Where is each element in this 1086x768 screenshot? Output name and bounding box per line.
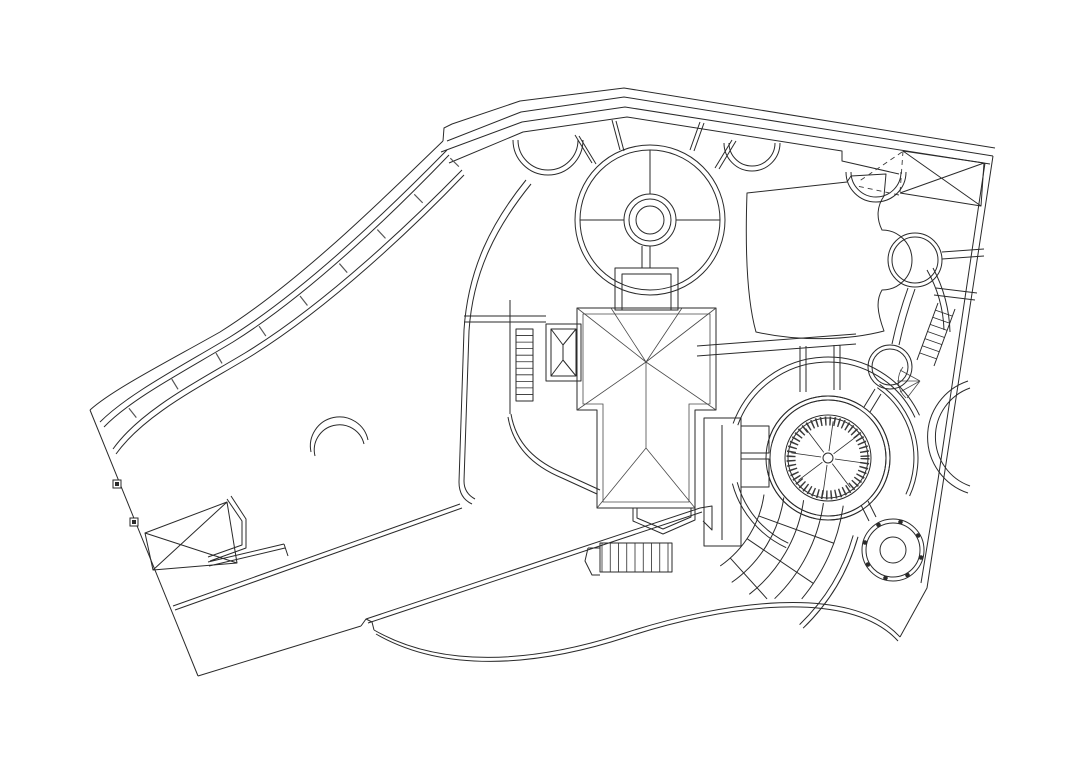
garden-road-spokes — [575, 120, 736, 169]
east-stair-rungs — [920, 310, 953, 359]
boundary-bottom-left — [198, 619, 374, 676]
boundary-bottom-curve — [374, 602, 900, 661]
west-deck-frame — [510, 300, 533, 414]
site-plan-drawing — [0, 0, 1086, 768]
west-pavilion — [546, 324, 581, 381]
trellis-box — [900, 151, 984, 206]
fountain-circle — [766, 396, 890, 520]
north-portico — [615, 268, 678, 310]
carport-trellis — [145, 502, 237, 570]
road-scallop-arc-0 — [513, 140, 583, 175]
northeast-lawn — [746, 174, 912, 339]
carport-walls — [208, 496, 288, 566]
well-perimeter-dots — [863, 520, 924, 581]
small-court-circle — [868, 345, 912, 389]
west-deck-rungs — [516, 336, 533, 395]
boundary-right — [900, 156, 993, 637]
lawn-round-planter — [888, 233, 942, 287]
south-stair-treads — [602, 543, 668, 572]
garden-wall-upper — [173, 504, 462, 610]
site-plan-canvas — [0, 0, 1086, 768]
east-boundary-arcs — [928, 381, 970, 493]
south-stairs-frame — [585, 543, 672, 575]
road-scallop-arc-2 — [846, 172, 906, 202]
west-walk-connector — [464, 316, 546, 322]
fountain-tick-ring — [791, 421, 865, 495]
driveway-band — [100, 150, 464, 454]
garden-cross-paths — [580, 150, 720, 268]
fountain-step-pads — [741, 426, 769, 487]
house-wall-line — [583, 314, 710, 502]
north-terrace-band — [697, 334, 856, 392]
east-terrace — [704, 418, 741, 546]
top-inner-path — [449, 117, 899, 174]
driveway-tick-marks — [107, 162, 455, 437]
house-roof-outline — [577, 308, 716, 508]
fence-posts — [113, 480, 138, 526]
driveway-scallop — [310, 417, 368, 456]
west-garden-path — [508, 414, 600, 494]
east-stair-fan — [897, 367, 920, 398]
boundary-left-curve — [90, 141, 443, 410]
well-circle — [862, 519, 924, 581]
south-bay-window — [633, 508, 695, 534]
